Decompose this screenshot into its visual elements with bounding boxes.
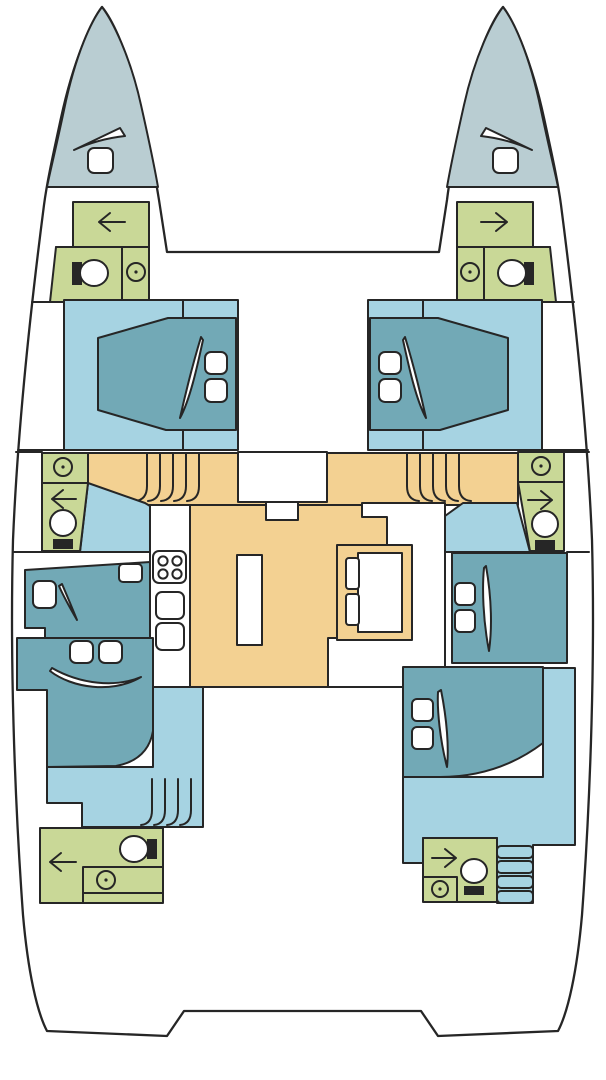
starboard-mid-landing: [445, 503, 530, 552]
catamaran-deck-plan: [0, 0, 606, 1080]
pillow-icon: [33, 581, 56, 608]
sink-icon: [156, 623, 184, 650]
pillow-icon: [379, 352, 401, 374]
stove-icon: [153, 551, 186, 583]
port-mid-berth: [25, 562, 150, 640]
toilet-icon: [498, 260, 534, 286]
deck-plan-canvas: [0, 0, 606, 1080]
pillow-icon: [205, 379, 227, 402]
pillow-icon: [70, 641, 93, 663]
pillow-icon: [412, 699, 433, 721]
pillow-icon: [412, 727, 433, 749]
pillow-icon: [455, 583, 475, 605]
starboard-forward-cabin: [368, 300, 542, 450]
starboard-aft-head: [423, 838, 497, 902]
cushion: [119, 564, 142, 582]
deck-hatch-icon: [493, 148, 518, 173]
starboard-mid-cabin: [452, 553, 567, 663]
pillow-icon: [205, 352, 227, 374]
deck-hatch-icon: [88, 148, 113, 173]
island-counter: [237, 555, 262, 645]
pillow-icon: [379, 379, 401, 402]
port-mid-head: [42, 453, 88, 551]
port-forward-cabin: [64, 300, 238, 450]
toilet-icon: [461, 859, 487, 895]
toilet-icon: [72, 260, 108, 286]
pillow-icon: [455, 610, 475, 632]
toilet-icon: [120, 836, 157, 862]
toilet-icon: [50, 510, 76, 549]
dinette-seat: [346, 594, 359, 625]
toilet-icon: [532, 511, 558, 550]
starboard-bow-deck: [447, 7, 558, 187]
port-aft-head: [40, 828, 163, 903]
port-bow-deck: [47, 7, 158, 187]
galley: [150, 505, 190, 687]
dinette-seat: [346, 558, 359, 589]
sink-icon: [156, 592, 184, 619]
dinette-table: [358, 553, 402, 632]
pillow-icon: [99, 641, 122, 663]
